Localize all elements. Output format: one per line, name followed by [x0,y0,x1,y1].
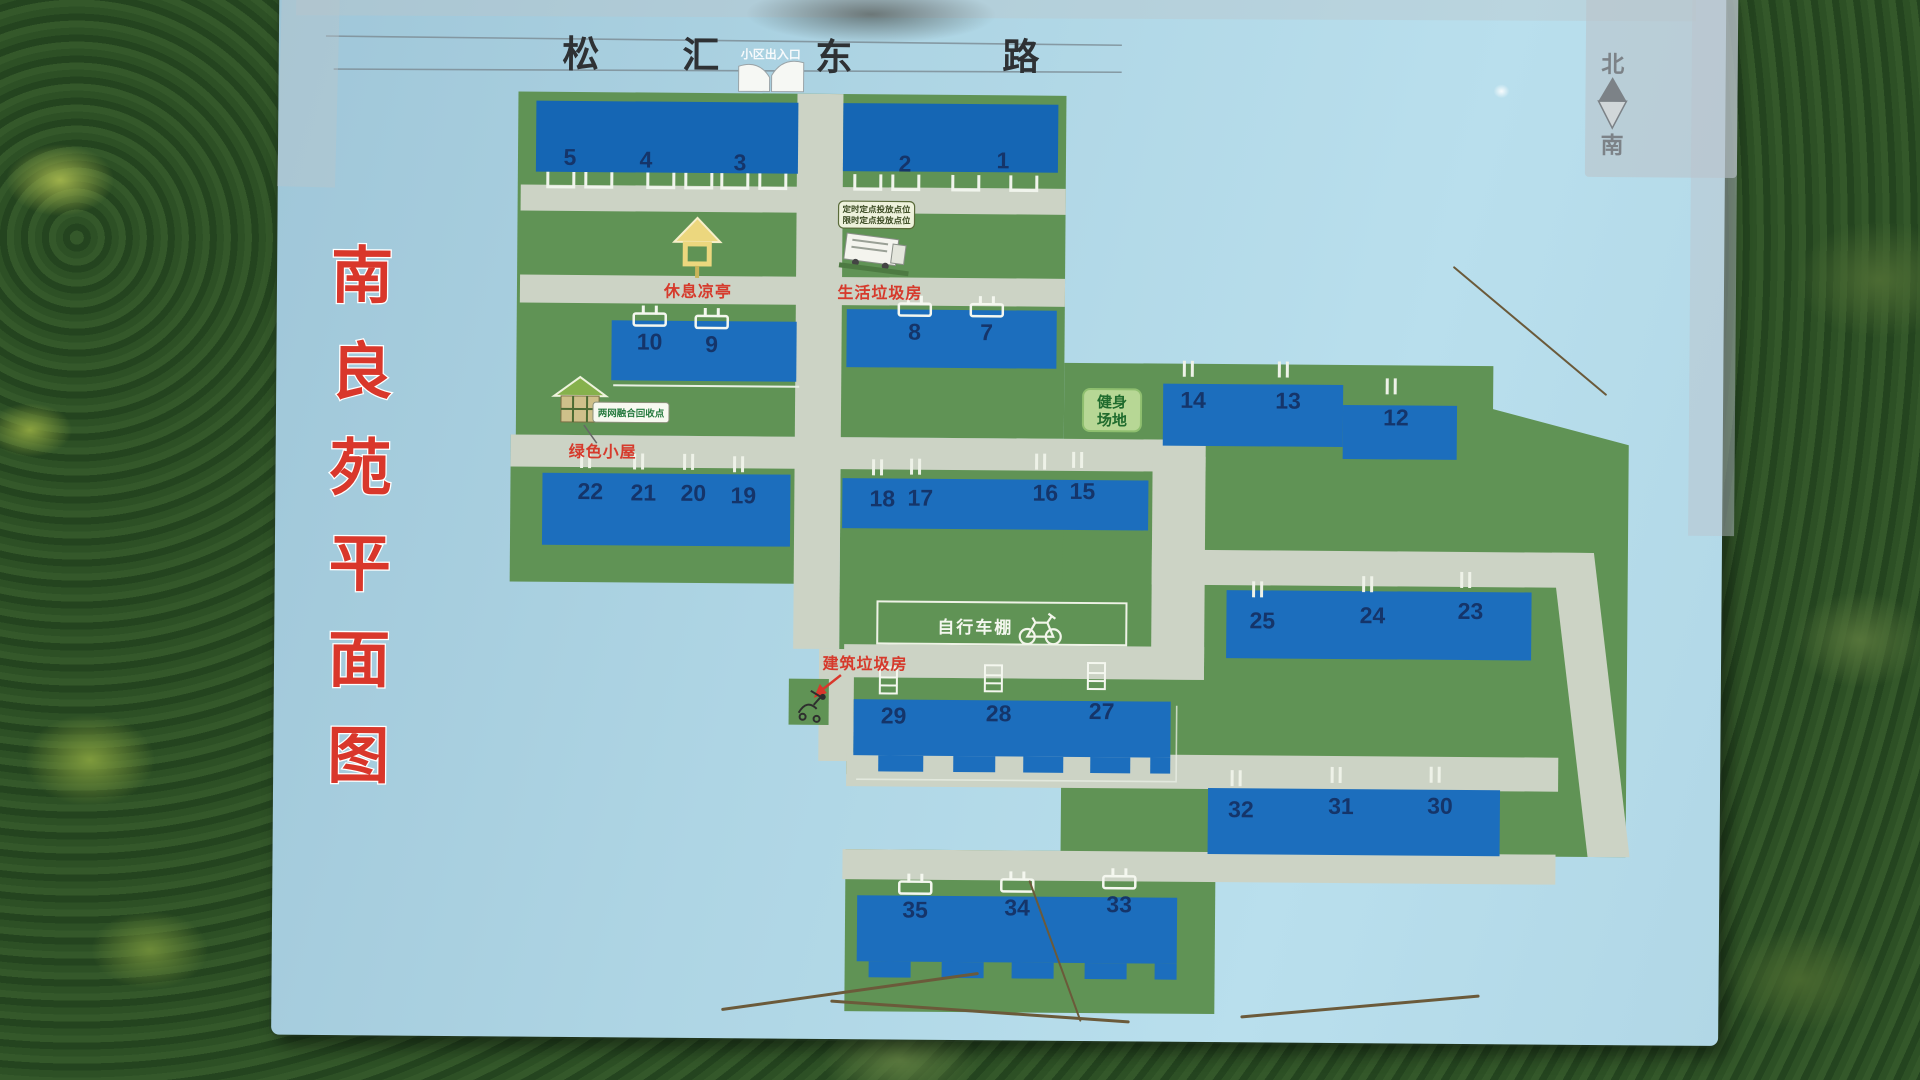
domestic-waste-label: 生活垃圾房 [837,283,922,303]
building-34: 34 [1001,871,1033,920]
building-number: 29 [881,702,907,728]
waste-sign-line1: 定时定点投放点位 [842,204,912,215]
title-char: 良 [330,338,393,407]
building-10: 10 [633,305,665,354]
road-name-char: 松 [562,34,599,76]
building-2: 2 [898,151,911,177]
pavilion-label: 休息凉亭 [663,282,732,302]
photo-of-map-sign: 自行车棚 [0,0,1920,1080]
building-number: 25 [1249,607,1275,633]
road-name-char: 汇 [682,36,719,77]
building-number: 24 [1360,602,1386,628]
building-33: 33 [1103,868,1135,917]
building-1: 1 [996,147,1009,173]
title-char: 面 [328,626,391,695]
building-number: 3 [733,149,746,175]
building-number: 23 [1458,598,1484,624]
building-35: 35 [899,874,931,923]
construction-waste-label: 建筑垃圾房 [822,654,907,674]
building-number: 12 [1383,404,1409,430]
building-number: 34 [1004,894,1030,920]
title-char: 苑 [329,434,392,503]
fitness-area-badge: 健身 场地 [1083,389,1141,431]
fitness-label-line1: 健身 [1097,393,1127,411]
title-char: 图 [327,722,390,791]
title-char: 南 [331,242,394,311]
building-number: 28 [986,700,1012,726]
fitness-label-line2: 场地 [1097,411,1127,429]
road-name-char: 路 [1002,36,1040,78]
building-number: 27 [1089,698,1115,724]
building-number: 5 [563,144,576,170]
building-number: 19 [730,482,756,508]
building-number: 15 [1069,478,1095,504]
building-number: 33 [1106,891,1132,917]
building-number: 21 [630,479,656,505]
road-name-char: 东 [815,37,852,79]
building-number: 20 [680,480,706,506]
building-number: 9 [705,331,718,357]
building-number: 13 [1275,387,1301,413]
building-number: 7 [980,319,993,345]
building-number: 8 [908,319,921,345]
building-number: 2 [898,151,911,177]
title-char: 平 [329,530,392,599]
building-number: 10 [637,328,663,354]
building-number: 32 [1228,796,1254,822]
tape-right-strip [1688,0,1738,536]
building-4: 4 [639,146,652,172]
building-number: 30 [1427,793,1453,819]
waste-sign-line2: 限时定点投放点位 [842,215,911,226]
construction-waste-pad [789,679,829,725]
building-5: 5 [563,144,576,170]
entrance-label: 小区出入口 [741,46,801,61]
waste-schedule-sign: 定时定点投放点位 限时定点投放点位 [838,201,914,229]
building-number: 31 [1328,793,1354,819]
building-number: 4 [639,146,652,172]
board-wrap: 自行车棚 [0,0,1920,1080]
green-cabin-label: 绿色小屋 [569,442,637,462]
tape-left-strip [277,0,340,188]
building-number: 1 [996,147,1009,173]
building-3: 3 [733,149,746,175]
entrance-gate-icon [739,61,804,92]
building-number: 18 [869,485,895,511]
building-number: 22 [577,478,603,504]
building-number: 35 [902,897,928,923]
glare-spot [1493,84,1509,98]
building-number: 16 [1032,480,1058,506]
building-number: 17 [907,485,933,511]
bike-shed: 自行车棚 [877,601,1126,645]
building-number: 14 [1180,387,1206,413]
recycle-point-label: 两网融合回收点 [598,407,665,420]
bike-shed-label: 自行车棚 [937,617,1013,638]
map-title: 南 良 苑 平 面 图 [327,242,393,791]
recycle-point-sign: 两网融合回收点 [593,402,669,423]
